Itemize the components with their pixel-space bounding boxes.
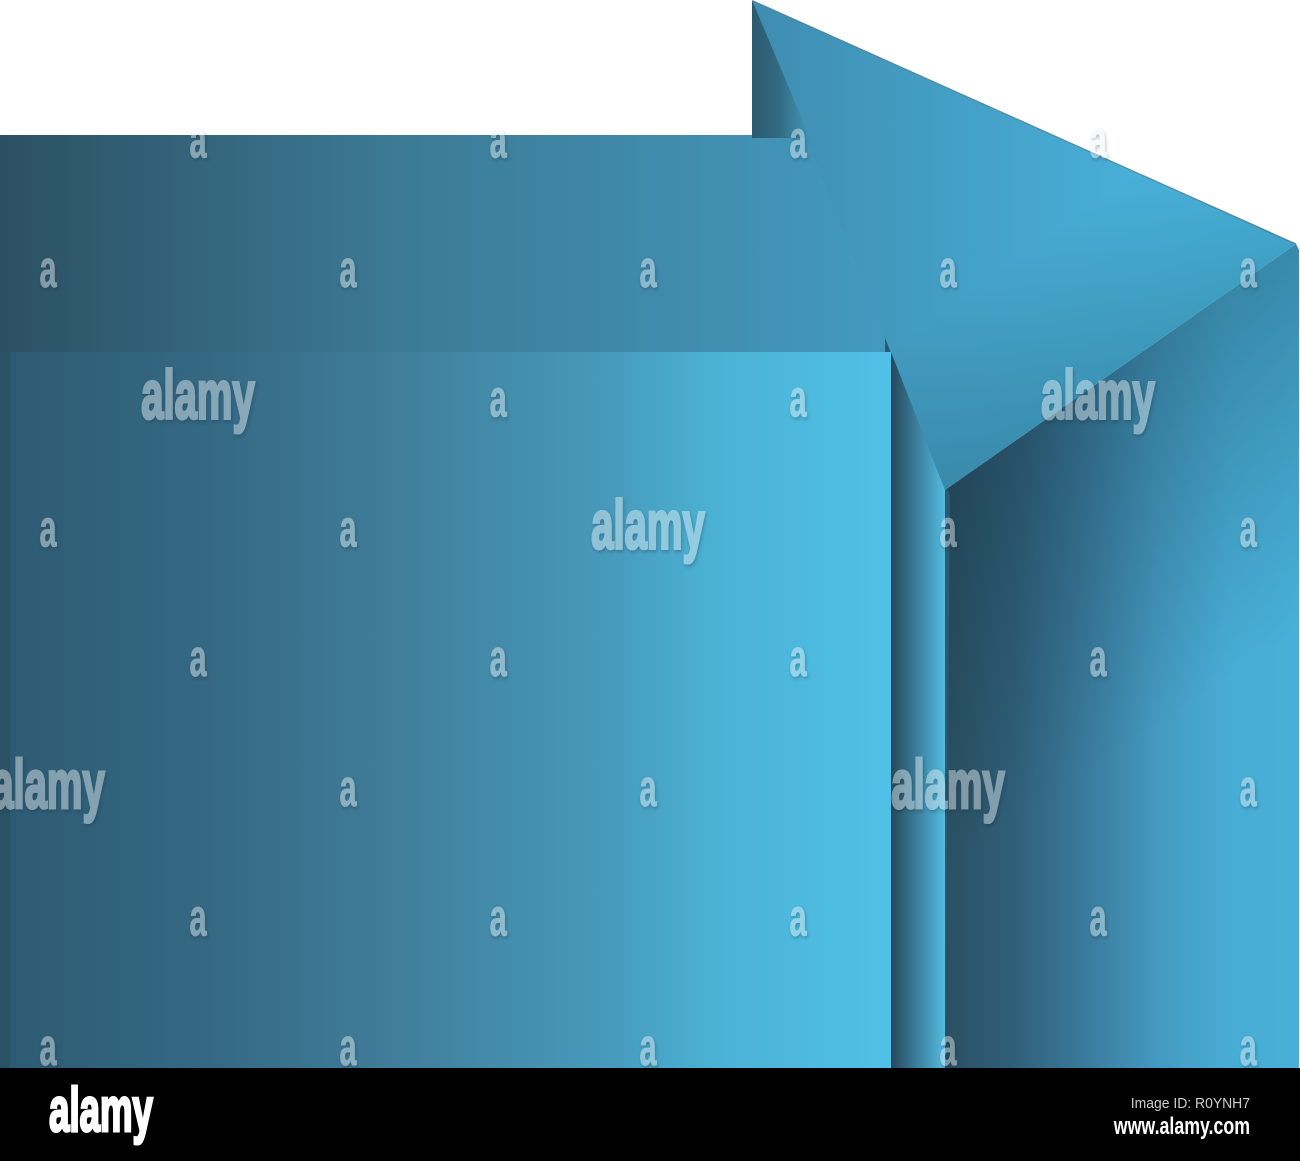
svg-text:alamy: alamy: [1041, 356, 1155, 433]
svg-text:a: a: [940, 241, 958, 300]
svg-text:a: a: [190, 111, 208, 170]
svg-text:a: a: [640, 759, 658, 818]
svg-text:alamy: alamy: [591, 486, 705, 563]
svg-text:www.alamy.com: www.alamy.com: [1113, 1114, 1250, 1140]
svg-text:a: a: [1090, 889, 1108, 948]
svg-text:a: a: [790, 630, 808, 689]
svg-text:alamy: alamy: [141, 356, 255, 433]
svg-text:Image ID: R0YNH7: Image ID: R0YNH7: [1131, 1096, 1250, 1113]
svg-text:a: a: [1240, 500, 1258, 559]
svg-text:a: a: [340, 500, 358, 559]
svg-text:a: a: [40, 241, 58, 300]
svg-text:a: a: [790, 111, 808, 170]
svg-text:a: a: [490, 111, 508, 170]
svg-text:a: a: [340, 241, 358, 300]
svg-text:a: a: [340, 759, 358, 818]
svg-text:a: a: [190, 630, 208, 689]
svg-text:a: a: [1240, 241, 1258, 300]
svg-text:a: a: [190, 889, 208, 948]
svg-text:a: a: [490, 370, 508, 429]
svg-text:a: a: [640, 241, 658, 300]
svg-text:alamy: alamy: [891, 745, 1005, 822]
svg-text:a: a: [790, 370, 808, 429]
svg-text:a: a: [40, 500, 58, 559]
svg-text:a: a: [1090, 111, 1108, 170]
svg-text:a: a: [1240, 759, 1258, 818]
svg-text:alamy: alamy: [0, 745, 105, 822]
svg-text:alamy: alamy: [49, 1075, 153, 1144]
svg-text:a: a: [790, 889, 808, 948]
svg-text:a: a: [940, 500, 958, 559]
svg-text:a: a: [490, 889, 508, 948]
svg-text:a: a: [1090, 630, 1108, 689]
svg-text:a: a: [490, 630, 508, 689]
